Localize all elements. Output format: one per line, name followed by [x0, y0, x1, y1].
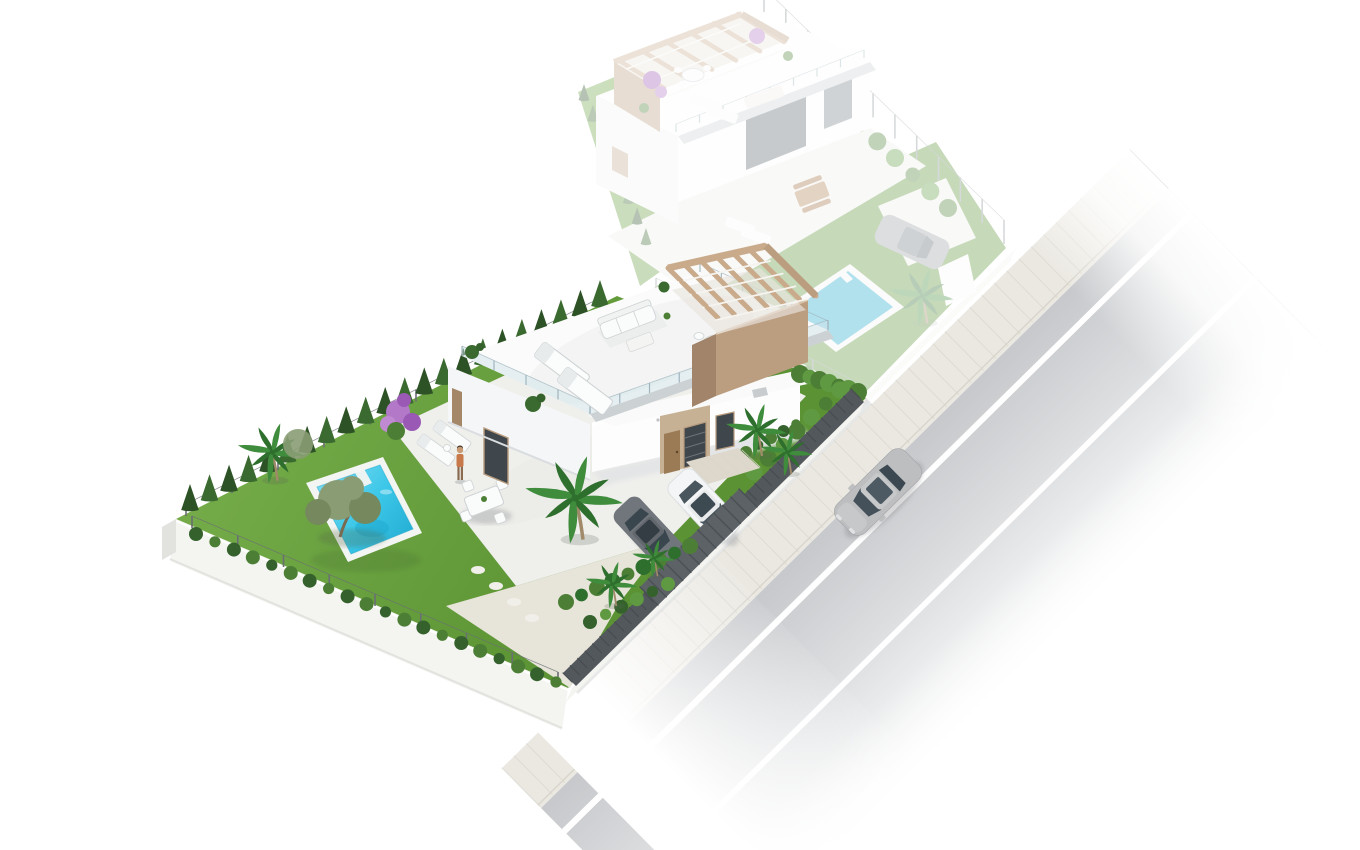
border-bush [494, 653, 505, 664]
palm-shadow [604, 603, 624, 609]
cypress-tree [415, 367, 433, 394]
border-bush [189, 527, 203, 541]
olive-foliage [305, 499, 331, 525]
border-bush [303, 574, 317, 588]
border-bush [454, 636, 468, 650]
person-body [457, 454, 464, 467]
border-bush [511, 659, 525, 673]
roof-planter [476, 343, 484, 351]
neighbor-chair [701, 79, 709, 85]
cypress-tree [337, 406, 355, 433]
olive-shadow [318, 529, 386, 547]
neighbor-roof-plant2 [783, 51, 793, 61]
pool-glint [380, 490, 392, 495]
tropical-bush [661, 577, 675, 591]
neighbor-roof-plant3 [639, 103, 649, 113]
olive-foliage [340, 476, 364, 500]
border-bush [550, 676, 561, 687]
palm-shadow [561, 534, 599, 545]
person-leg [457, 466, 459, 480]
stepping-stone [489, 582, 503, 590]
border-bush [246, 550, 260, 564]
person-leg [461, 466, 463, 480]
border-bush [341, 589, 355, 603]
stepping-stone [507, 598, 521, 606]
cypress-tree [357, 397, 375, 424]
border-bush [266, 560, 277, 571]
border-bush [323, 583, 334, 594]
neighbor-flower-tree2 [655, 86, 667, 98]
palm-shadow [779, 471, 799, 477]
border-bush [397, 613, 411, 627]
tropical-bush [583, 615, 597, 629]
palm-shadow [648, 574, 665, 579]
cypress-tree [220, 465, 238, 492]
bougainvillea-base [387, 422, 405, 440]
neighbor-flower-tree [643, 71, 661, 89]
render-canvas [0, 0, 1360, 850]
tropical-bush [630, 592, 644, 606]
neighbor-round-table [682, 69, 704, 82]
neighbor-chair [674, 67, 682, 73]
stepping-stone [471, 566, 485, 574]
cypress-tree [591, 280, 609, 307]
border-bush [360, 597, 374, 611]
corner-tree-foliage [283, 429, 313, 459]
table-plant [481, 496, 487, 502]
neighbor-roof-plant [749, 28, 765, 44]
tropical-bush [682, 538, 698, 554]
hedge-bush [791, 419, 801, 429]
stepping-stone [525, 614, 539, 622]
tropical-bush [647, 586, 658, 597]
bougainvillea [397, 393, 411, 407]
roof-chair [694, 333, 704, 340]
border-bush [437, 630, 448, 641]
border-bush [209, 536, 220, 547]
cypress-tree [181, 484, 199, 511]
hedge-bush [905, 167, 919, 181]
palm-crown [610, 582, 614, 586]
tropical-bush [575, 589, 588, 602]
palm-crown [652, 556, 655, 559]
west-window [484, 428, 508, 484]
palm-shadow [262, 477, 288, 485]
roof-sofa-plant [664, 313, 671, 320]
border-bush [227, 543, 241, 557]
palm-shadow [913, 320, 938, 327]
hedge-bush [886, 149, 904, 167]
palm-shadow [748, 453, 772, 460]
neighbor-chair [703, 65, 711, 71]
side-table [444, 445, 451, 452]
palm-crown [785, 450, 789, 454]
border-bush [473, 644, 487, 658]
roof-planter [659, 282, 670, 293]
tropical-bush [600, 609, 611, 620]
scene-svg [0, 0, 1360, 850]
west-door [452, 388, 462, 428]
palm-crown [270, 450, 275, 455]
palm-crown [755, 428, 759, 432]
wall-lamp [656, 418, 659, 421]
border-bush [530, 667, 544, 681]
tropical-bush [558, 594, 574, 610]
wing-window2 [716, 412, 734, 450]
tropical-bush [668, 547, 681, 560]
palm-crown [920, 294, 925, 299]
palm-crown [571, 494, 578, 501]
neighbor-chair [678, 81, 686, 87]
hedge-bush [921, 182, 939, 200]
hedge-bush [819, 397, 833, 411]
border-bush [416, 620, 430, 634]
hedge-bush [868, 132, 886, 150]
cypress-tree [240, 455, 258, 482]
cypress-tree [201, 474, 219, 501]
bougainvillea [403, 413, 421, 431]
cypress-tree [318, 416, 336, 443]
stair-box-side [692, 334, 716, 407]
door-handle [676, 451, 678, 453]
border-bush [284, 566, 298, 580]
roof-planter [537, 394, 546, 403]
border-bush [380, 606, 391, 617]
hedge-bush [939, 199, 957, 217]
